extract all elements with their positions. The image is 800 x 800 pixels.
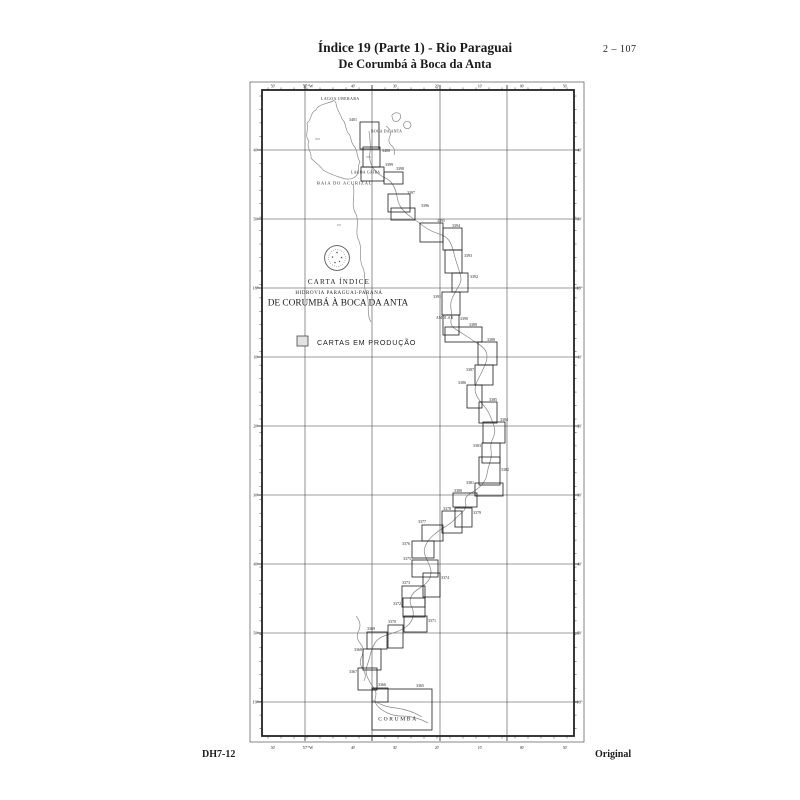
axis-tick-label: 50'	[577, 217, 582, 221]
chart-number-label: 3373	[402, 580, 410, 585]
chart-number-label: 3365	[416, 683, 424, 688]
axis-tick-label: 30'	[393, 746, 398, 750]
axis-tick-label: 50'	[271, 746, 276, 750]
chart-number-label: 3382	[501, 467, 509, 472]
axis-tick-label: 20'	[435, 746, 440, 750]
axis-tick-label: 30'	[393, 85, 398, 89]
trecho-title: DE CORUMBÁ À BOCA DA ANTA	[268, 297, 409, 309]
axis-tick-label: 40'	[351, 85, 356, 89]
axis-tick-label: 50'	[253, 217, 258, 221]
axis-tick-label: 40'	[577, 148, 582, 152]
place-label-boca-da-anta: BOCA DA ANTA	[371, 130, 402, 134]
chart-number-label: 3390	[460, 316, 468, 321]
chart-number-label: 3394	[452, 223, 460, 228]
axis-tick-label: 10'	[478, 746, 483, 750]
chart-number-label: 3401	[349, 117, 357, 122]
axis-tick-label: 50'	[577, 631, 582, 635]
chart-index-map: 50'57°W40'30'20'10'00'50'50'57°W40'30'20…	[0, 0, 800, 800]
chart-number-label: 3391	[433, 294, 441, 299]
axis-tick-label: 40'	[351, 746, 356, 750]
chart-number-label: 3400	[382, 148, 390, 153]
chart-number-label: 3397	[407, 190, 415, 195]
place-label-amolar: AMOLAR	[436, 316, 454, 320]
chart-number-label: 3377	[418, 519, 426, 524]
axis-tick-label: 18°	[576, 285, 583, 290]
chart-number-label: 3392	[470, 274, 478, 279]
footer-edition: Original	[595, 749, 631, 760]
shoreline-path	[307, 101, 360, 179]
axis-tick-label: 00'	[520, 85, 525, 89]
chart-number-label: 3370	[388, 619, 396, 624]
chart-number-label: 3393	[464, 253, 472, 258]
chart-number-label: 3384	[500, 417, 508, 422]
chart-number-label: 3379	[473, 510, 481, 515]
axis-tick-label: 19°	[252, 699, 259, 704]
chart-outline	[404, 616, 427, 632]
chart-number-label: 3368	[354, 647, 362, 652]
axis-tick-label: 00'	[520, 746, 525, 750]
carta-indice-title: CARTA ÍNDICE	[308, 278, 370, 286]
scanned-chart-index-page: Índice 19 (Parte 1) - Rio Paraguai De Co…	[0, 0, 800, 800]
chart-number-label: 3387	[466, 367, 474, 372]
chart-outline	[412, 541, 434, 558]
axis-tick-label: 30'	[577, 493, 582, 497]
chart-number-label: 3367	[349, 669, 357, 674]
chart-outline	[467, 385, 482, 408]
axis-tick-label: 50'	[253, 631, 258, 635]
chart-number-label: 3395	[437, 218, 445, 223]
axis-tick-label: 57°W	[303, 84, 314, 89]
chart-outline	[443, 228, 462, 250]
legend-label: CARTAS EM PRODUÇÃO	[317, 338, 416, 347]
rio-paraguai-course	[366, 131, 495, 723]
chart-outline	[403, 598, 425, 617]
chart-number-label: 3381	[466, 480, 474, 485]
chart-number-label: 3385	[489, 397, 497, 402]
chart-number-label: 3389	[469, 322, 477, 327]
axis-tick-label: 50'	[271, 85, 276, 89]
axis-tick-label: 40'	[253, 148, 258, 152]
axis-tick-label: 40'	[253, 562, 258, 566]
axis-tick-label: 20'	[253, 424, 258, 428]
axis-tick-label: 57°W	[303, 745, 314, 750]
chart-number-label: 3369	[367, 626, 375, 631]
chart-outline	[412, 560, 438, 577]
chart-number-label: 3371	[428, 618, 436, 623]
chart-outline	[402, 586, 425, 607]
chart-number-label: 3375	[403, 556, 411, 561]
place-label-lagoa-gaiba: LAGOA GAÍBA	[351, 170, 380, 175]
chart-number-label: 3372	[393, 601, 401, 606]
axis-tick-label: 50'	[563, 85, 568, 89]
chart-outline	[388, 625, 403, 648]
chart-number-label: 3374	[441, 575, 449, 580]
axis-tick-label: 20'	[577, 424, 582, 428]
chart-number-label: 3378	[443, 506, 451, 511]
chart-outline	[384, 172, 403, 184]
place-label-lagoa-uberaba: LAGOA UBERABA	[321, 97, 360, 101]
chart-outline	[423, 573, 440, 597]
chart-number-label: 3396	[421, 203, 429, 208]
shoreline-path	[392, 113, 411, 129]
navy-seal-stamp-icon	[325, 246, 350, 271]
place-label-corumba: CORUMBÁ	[378, 715, 418, 723]
outer-frame	[250, 82, 584, 742]
axis-tick-label: 10'	[577, 355, 582, 359]
axis-tick-label: 10'	[253, 355, 258, 359]
footer-doc-code: DH7-12	[202, 749, 235, 760]
axis-tick-label: 18°	[252, 285, 259, 290]
hidrovia-subtitle: HIDROVIA PARAGUAI-PARANÁ	[295, 290, 382, 296]
chart-number-label: 3399	[385, 162, 393, 167]
chart-number-label: 3383	[473, 443, 481, 448]
axis-tick-label: 20'	[435, 85, 440, 89]
chart-outline	[445, 250, 462, 273]
legend: CARTAS EM PRODUÇÃO	[297, 336, 416, 347]
axis-tick-label: 50'	[563, 746, 568, 750]
map-generated-layer: 50'57°W40'30'20'10'00'50'50'57°W40'30'20…	[250, 82, 584, 750]
chart-number-label: 3388	[487, 337, 495, 342]
map-neatline	[262, 90, 574, 736]
axis-tick-label: 40'	[577, 562, 582, 566]
place-label-baia-do-acurizal: BAIA DO ACURIZAL	[317, 181, 372, 186]
chart-number-label: 3366	[378, 682, 386, 687]
chart-number-label: 3398	[396, 166, 404, 171]
axis-tick-label: 30'	[253, 493, 258, 497]
chart-number-label: 3386	[458, 380, 466, 385]
axis-tick-label: 19°	[576, 699, 583, 704]
chart-number-label: 3376	[402, 541, 410, 546]
legend-swatch-icon	[297, 336, 308, 346]
chart-outline	[358, 668, 377, 690]
chart-number-label: 3380	[454, 488, 462, 493]
axis-tick-label: 10'	[478, 85, 483, 89]
